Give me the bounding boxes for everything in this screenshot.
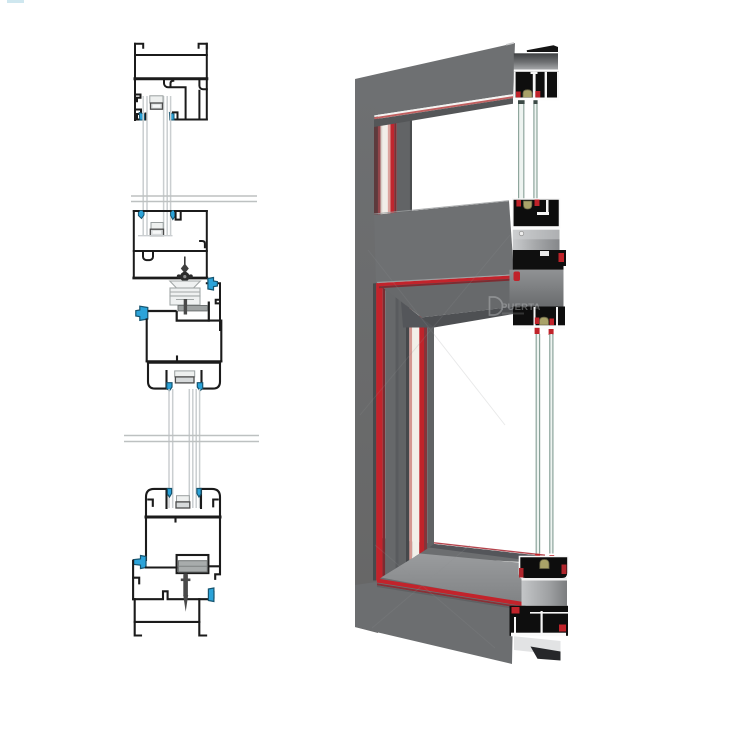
svg-text:PUERTA: PUERTA bbox=[501, 302, 541, 313]
